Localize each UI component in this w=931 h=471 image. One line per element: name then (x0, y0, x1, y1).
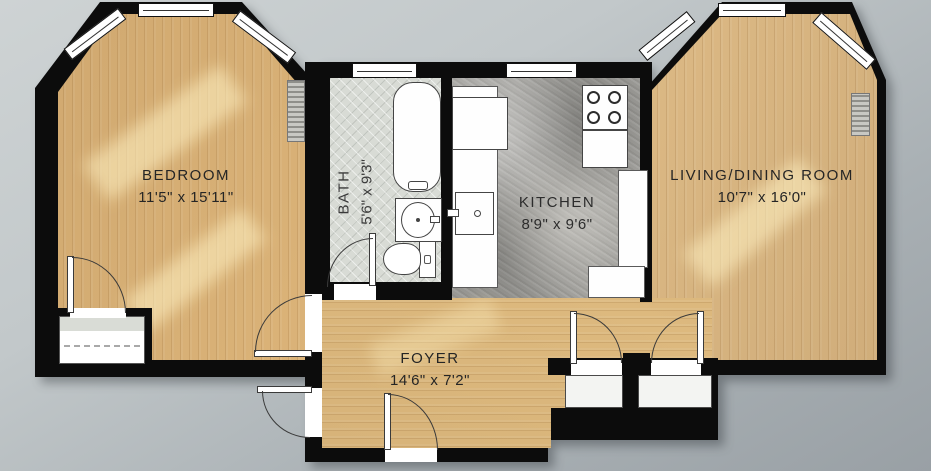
bath-label: BATH 5'6" x 9'3" (334, 159, 379, 225)
kitchen-label: KITCHEN 8'9" x 9'6" (519, 192, 595, 236)
living-room-dims: 10'7" x 16'0" (670, 187, 854, 209)
bath-name: BATH (334, 159, 357, 225)
living-bay-window-center (718, 3, 786, 17)
living-room-name: LIVING/DINING ROOM (670, 165, 854, 187)
floor-plan: BEDROOM 11'5" x 15'11" BATH 5'6" x 9'3" … (0, 0, 931, 471)
bedroom-radiator (287, 80, 305, 142)
bathtub (393, 82, 441, 192)
kitchen-sink-drain (474, 210, 481, 217)
bedroom-closet-rail (64, 345, 140, 347)
kitchen-window (506, 63, 577, 78)
bedroom-name: BEDROOM (138, 165, 233, 187)
toilet-flush-button (424, 255, 431, 264)
refrigerator (452, 97, 508, 150)
living-room-label: LIVING/DINING ROOM 10'7" x 16'0" (670, 165, 854, 209)
stove-burner (587, 91, 600, 104)
bath-dims: 5'6" x 9'3" (356, 159, 379, 225)
foyer-closet (565, 375, 623, 408)
kitchen-counter-right (618, 170, 648, 268)
kitchen-sink-faucet-icon (447, 209, 459, 217)
entry-door-opening (385, 448, 437, 462)
bedroom-bay-window-center (138, 3, 214, 17)
foyer-name: FOYER (390, 348, 470, 370)
kitchen-peninsula-counter (588, 266, 645, 298)
kitchen-name: KITCHEN (519, 192, 595, 214)
kitchen-dims: 8'9" x 9'6" (519, 214, 595, 236)
kitchen-counter-stove-side (582, 130, 628, 168)
toilet-bowl (383, 243, 421, 275)
foyer-label: FOYER 14'6" x 7'2" (390, 348, 470, 392)
foyer-dims: 14'6" x 7'2" (390, 370, 470, 392)
stove-burner (587, 111, 600, 124)
bathroom-sink-faucet-icon (430, 216, 440, 223)
bath-window (352, 63, 417, 78)
stove-burner (608, 91, 621, 104)
bedroom-label: BEDROOM 11'5" x 15'11" (138, 165, 233, 209)
living-closet (638, 375, 712, 408)
bedroom-closet-shelf (60, 317, 144, 331)
wall-bedroom-bath (305, 62, 330, 290)
wall-bath-kitchen (441, 62, 452, 300)
bedroom-dims: 11'5" x 15'11" (138, 187, 233, 209)
bathtub-faucet-icon (408, 181, 428, 190)
bathroom-sink-drain (416, 218, 420, 222)
living-room-radiator (851, 93, 870, 136)
stove-burner (608, 111, 621, 124)
